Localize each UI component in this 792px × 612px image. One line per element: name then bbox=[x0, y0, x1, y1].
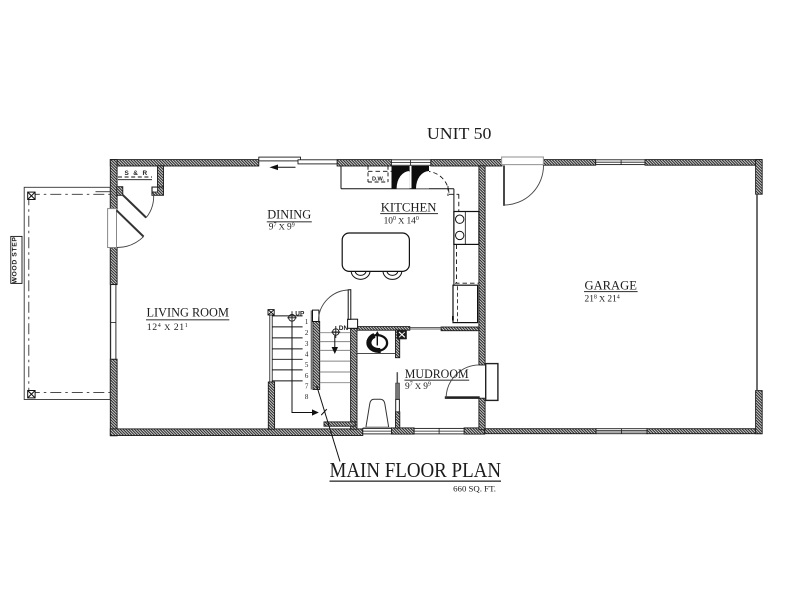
svg-text:97 X 99: 97 X 99 bbox=[269, 222, 295, 233]
svg-text:6: 6 bbox=[305, 372, 309, 380]
svg-text:MUDROOM: MUDROOM bbox=[405, 367, 469, 381]
svg-text:DN: DN bbox=[339, 325, 349, 332]
svg-text:LIVING ROOM: LIVING ROOM bbox=[147, 306, 229, 320]
svg-text:3: 3 bbox=[305, 340, 309, 348]
svg-text:7: 7 bbox=[305, 383, 309, 391]
svg-text:DINING: DINING bbox=[267, 208, 311, 222]
svg-text:WOOD STEP: WOOD STEP bbox=[12, 237, 19, 284]
svg-text:MAIN FLOOR PLAN: MAIN FLOOR PLAN bbox=[330, 458, 502, 482]
svg-text:97 X 99: 97 X 99 bbox=[405, 381, 431, 392]
svg-text:1: 1 bbox=[305, 318, 309, 326]
svg-text:124 X 211: 124 X 211 bbox=[147, 322, 189, 333]
svg-text:UP: UP bbox=[295, 311, 305, 318]
svg-text:4: 4 bbox=[305, 351, 309, 359]
svg-text:UNIT 50: UNIT 50 bbox=[427, 124, 492, 143]
svg-text:218 X 214: 218 X 214 bbox=[585, 294, 620, 305]
svg-text:GARAGE: GARAGE bbox=[585, 278, 638, 292]
svg-text:100 X 140: 100 X 140 bbox=[384, 215, 419, 226]
svg-text:KITCHEN: KITCHEN bbox=[381, 201, 437, 215]
svg-text:D.W.: D.W. bbox=[372, 176, 385, 182]
svg-text:2: 2 bbox=[305, 329, 309, 337]
svg-text:660 SQ. FT.: 660 SQ. FT. bbox=[453, 483, 496, 493]
svg-text:S & R: S & R bbox=[124, 170, 148, 177]
svg-text:8: 8 bbox=[305, 393, 309, 401]
svg-text:5: 5 bbox=[305, 361, 309, 369]
